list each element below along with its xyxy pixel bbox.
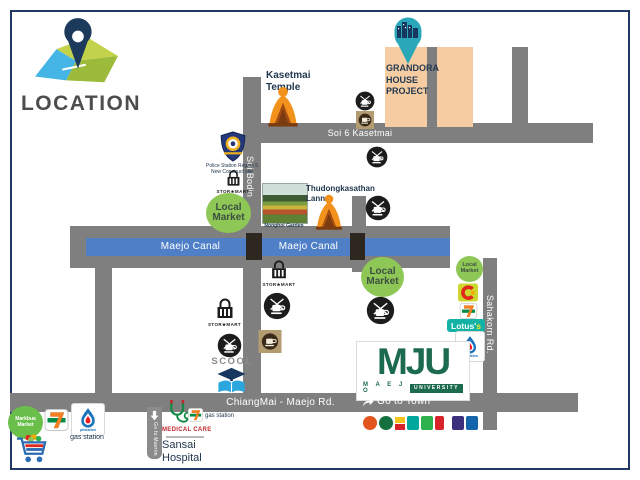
go-to-maerim-strip: Go to Maerim	[147, 407, 162, 459]
road-label-soi-6: Soi 6 Kasetmai	[320, 128, 400, 138]
stormart-store: STOR★MART	[216, 169, 250, 195]
local-market: Local Market	[456, 256, 483, 282]
shop-logo-chip	[379, 416, 393, 430]
shop-logo-chip	[407, 416, 419, 430]
project-name: GRANDORA HOUSE PROJECT	[386, 63, 442, 98]
monk-icon	[311, 193, 347, 231]
local-market: Local Market	[206, 193, 251, 233]
coffee-house-icon	[258, 330, 282, 353]
go-to-maerim-label: Go to Maerim	[152, 422, 158, 456]
coffee-shop-icon	[217, 333, 242, 358]
nonghoi-garden-caption: Nonghoi Garden	[256, 223, 312, 229]
go-to-town-label: Go to Town	[377, 396, 430, 407]
shop-logo-chip	[466, 416, 478, 430]
coffee-shop-icon	[366, 296, 395, 325]
ptt-drop-icon	[79, 407, 97, 428]
shop-logo-chip	[395, 417, 405, 430]
ptt-station: pttstation	[71, 403, 105, 436]
seven-eleven-icon	[459, 303, 478, 319]
road-west-vertical	[95, 268, 112, 393]
maejo-university-logo: MJU M A E J O UNIVERSITY	[356, 341, 470, 401]
shop-logo-chip	[435, 416, 444, 430]
location-map: LOCATION Maejo Canal Maejo Canal Soi Bod…	[0, 0, 640, 480]
padlock-icon	[268, 259, 290, 281]
stormart-store: STOR★MART	[262, 259, 296, 288]
padlock-icon	[213, 297, 237, 321]
shop-logo-strip	[363, 416, 478, 430]
page-title: LOCATION	[14, 92, 148, 116]
coffee-house-icon	[355, 111, 375, 129]
local-market: Local Market	[361, 257, 404, 297]
seven-eleven-icon	[44, 409, 69, 431]
medical-care-label: MEDICAL CARE	[162, 427, 212, 433]
canal-label: Maejo Canal	[148, 241, 233, 252]
sansai-hospital-label: Sansai Hospital	[162, 439, 222, 464]
road-north-east	[512, 47, 528, 123]
coffee-shop-icon	[365, 195, 391, 221]
police-badge-icon	[219, 131, 247, 162]
gas-station-label: gas station	[64, 434, 110, 441]
seven-eleven-icon	[188, 408, 203, 422]
shop-logo-chip	[421, 416, 433, 430]
market-cart-icon	[12, 433, 50, 465]
down-arrow-icon	[150, 410, 159, 421]
road-label-chiangmai: ChiangMai - Maejo Rd.	[213, 397, 348, 408]
canal-bridge	[246, 233, 262, 260]
scool-label: SCOOL	[210, 356, 254, 367]
project-block	[437, 47, 473, 127]
coffee-shop-icon	[366, 146, 388, 168]
medical-care-divider	[166, 436, 204, 438]
turn-arrow-icon	[362, 397, 374, 408]
project-pin-icon	[390, 15, 426, 65]
stormart-store: STOR★MART	[206, 297, 243, 328]
gas-station-label: gas station	[205, 413, 245, 419]
shop-logo-chip	[452, 416, 464, 430]
location-pin-map-icon	[26, 16, 126, 94]
coffee-shop-icon	[263, 292, 291, 320]
graduation-book-icon	[215, 367, 248, 396]
road-label-sahakorn: Sahakorn Rd.	[485, 295, 495, 370]
shop-logo-chip	[363, 416, 377, 430]
monk-icon	[263, 85, 303, 128]
nonghoi-garden-photo	[262, 183, 308, 224]
coffee-shop-icon	[355, 91, 375, 111]
canal-bridge	[350, 233, 365, 260]
cj-store-icon	[458, 283, 478, 302]
canal-label: Maejo Canal	[266, 241, 351, 252]
padlock-icon	[224, 169, 243, 188]
